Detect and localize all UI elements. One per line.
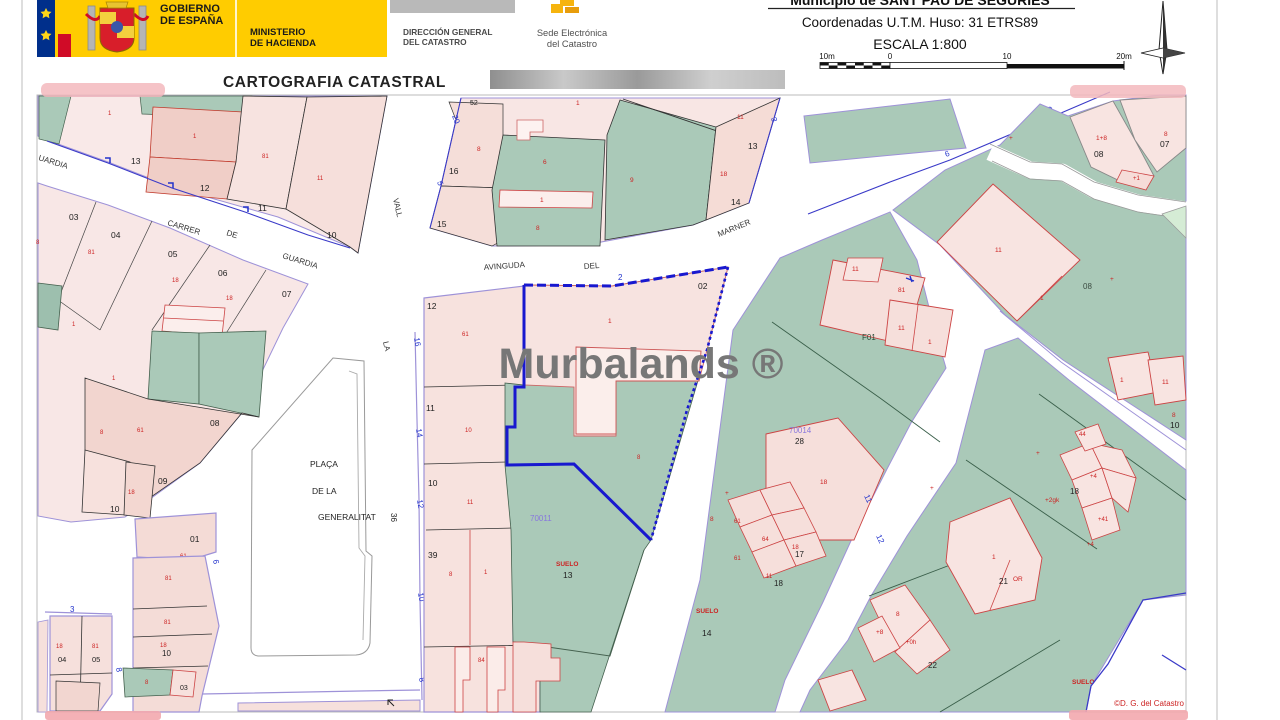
svg-text:61: 61	[734, 556, 741, 562]
svg-text:+1: +1	[1133, 176, 1141, 182]
svg-text:+: +	[725, 490, 729, 497]
svg-text:11: 11	[766, 574, 773, 580]
svg-text:8: 8	[896, 611, 900, 618]
svg-text:03: 03	[180, 685, 188, 692]
svg-text:11: 11	[852, 266, 859, 273]
svg-text:52: 52	[470, 100, 478, 107]
svg-text:1: 1	[1040, 295, 1044, 302]
svg-text:+: +	[930, 485, 934, 492]
svg-text:8: 8	[1172, 412, 1176, 419]
svg-text:11: 11	[995, 247, 1002, 254]
svg-text:11: 11	[426, 403, 435, 413]
svg-text:2: 2	[618, 273, 623, 282]
svg-text:64: 64	[762, 537, 769, 543]
svg-text:03: 03	[69, 212, 79, 222]
svg-text:Coordenadas U.T.M. Huso: 31 ET: Coordenadas U.T.M. Huso: 31 ETRS89	[802, 15, 1038, 30]
svg-text:12: 12	[427, 301, 437, 311]
svg-text:18: 18	[128, 490, 135, 496]
svg-text:OR: OR	[1013, 576, 1023, 583]
svg-text:del Catastro: del Catastro	[547, 39, 597, 49]
svg-text:+: +	[1110, 276, 1114, 283]
svg-text:Sede Electrónica: Sede Electrónica	[537, 28, 608, 38]
svg-text:02: 02	[698, 281, 708, 291]
svg-text:17: 17	[795, 550, 804, 559]
svg-text:+2gk: +2gk	[1045, 497, 1060, 504]
svg-text:+8: +8	[876, 629, 884, 636]
svg-text:36: 36	[389, 513, 398, 522]
svg-text:18: 18	[720, 171, 728, 178]
svg-text:18: 18	[774, 579, 783, 588]
svg-text:Murbalands ®: Murbalands ®	[499, 340, 784, 388]
svg-text:04: 04	[111, 230, 121, 240]
svg-text:10: 10	[327, 230, 337, 240]
svg-text:16: 16	[449, 166, 459, 176]
svg-text:+4: +4	[1087, 542, 1095, 548]
svg-text:11: 11	[467, 500, 474, 506]
svg-text:0: 0	[888, 52, 893, 61]
svg-text:13: 13	[748, 141, 758, 151]
svg-text:18: 18	[820, 479, 828, 486]
svg-text:8: 8	[710, 516, 714, 523]
svg-text:44: 44	[1079, 432, 1086, 438]
svg-text:13: 13	[563, 570, 573, 580]
svg-text:15: 15	[437, 219, 447, 229]
svg-text:10: 10	[162, 649, 171, 658]
svg-text:01: 01	[190, 534, 200, 544]
svg-text:8: 8	[1164, 131, 1168, 138]
svg-text:04: 04	[58, 655, 66, 664]
svg-text:10: 10	[465, 428, 472, 434]
svg-text:+0h: +0h	[906, 640, 916, 646]
svg-text:MINISTERIO: MINISTERIO	[250, 27, 305, 38]
svg-text:8: 8	[477, 146, 481, 153]
svg-text:©D. G. del Catastro: ©D. G. del Catastro	[1114, 699, 1184, 708]
svg-text:05: 05	[168, 249, 178, 259]
svg-text:1: 1	[992, 554, 996, 561]
svg-text:39: 39	[428, 550, 438, 560]
svg-text:1: 1	[928, 339, 932, 346]
svg-text:81: 81	[92, 644, 99, 650]
svg-text:10: 10	[110, 504, 120, 514]
svg-text:DEL CATASTRO: DEL CATASTRO	[403, 37, 467, 47]
svg-text:PLAÇA: PLAÇA	[310, 459, 338, 469]
svg-text:18: 18	[1070, 487, 1079, 496]
svg-text:18: 18	[160, 643, 167, 649]
svg-text:07: 07	[282, 289, 292, 299]
svg-text:11: 11	[1162, 379, 1169, 386]
svg-text:20m: 20m	[1116, 52, 1132, 61]
svg-text:61: 61	[734, 519, 741, 525]
svg-text:8: 8	[536, 225, 540, 232]
svg-text:18: 18	[226, 296, 233, 302]
svg-text:10m: 10m	[819, 52, 835, 61]
svg-text:81: 81	[262, 154, 269, 160]
svg-text:F01: F01	[862, 333, 876, 342]
svg-text:70014: 70014	[789, 426, 812, 435]
svg-text:10: 10	[1003, 52, 1012, 61]
svg-text:22: 22	[928, 661, 937, 670]
svg-text:61: 61	[137, 428, 144, 434]
svg-text:08: 08	[210, 418, 220, 428]
svg-text:+: +	[1036, 450, 1040, 457]
svg-text:12: 12	[200, 183, 210, 193]
svg-text:9: 9	[630, 177, 634, 184]
svg-text:11: 11	[737, 114, 744, 121]
svg-text:61: 61	[462, 332, 469, 338]
svg-text:1: 1	[1120, 377, 1124, 384]
svg-text:14: 14	[702, 628, 712, 638]
svg-text:11: 11	[317, 176, 324, 182]
svg-text:81: 81	[88, 250, 95, 256]
svg-text:6: 6	[543, 159, 547, 166]
svg-text:10: 10	[1170, 420, 1180, 430]
svg-text:81: 81	[898, 287, 906, 294]
svg-text:05: 05	[92, 655, 100, 664]
svg-text:GENERALITAT: GENERALITAT	[318, 512, 376, 522]
svg-text:+4: +4	[1090, 474, 1098, 480]
svg-text:18: 18	[56, 644, 63, 650]
svg-text:11: 11	[898, 325, 905, 332]
svg-text:81: 81	[165, 576, 172, 582]
svg-text:06: 06	[218, 268, 228, 278]
svg-text:1: 1	[608, 318, 612, 325]
svg-text:DIRECCIÓN GENERAL: DIRECCIÓN GENERAL	[403, 26, 492, 37]
svg-text:14: 14	[731, 197, 741, 207]
svg-text:DEL: DEL	[584, 261, 601, 271]
svg-text:DE LA: DE LA	[312, 486, 337, 496]
svg-text:1: 1	[576, 100, 580, 107]
svg-text:81: 81	[164, 620, 171, 626]
svg-text:13: 13	[131, 156, 141, 166]
svg-text:SUELO: SUELO	[696, 608, 718, 615]
svg-text:DE HACIENDA: DE HACIENDA	[250, 38, 316, 49]
svg-text:21: 21	[999, 577, 1008, 586]
svg-text:1: 1	[540, 197, 544, 204]
svg-text:07: 07	[1160, 139, 1170, 149]
svg-text:08: 08	[1094, 149, 1104, 159]
svg-text:Municipio de SANT PAU DE SEGUR: Municipio de SANT PAU DE SEGURIES	[790, 0, 1050, 8]
svg-text:+: +	[1009, 135, 1013, 142]
svg-text:CARTOGRAFIA CATASTRAL: CARTOGRAFIA CATASTRAL	[223, 74, 446, 91]
svg-text:SUELO: SUELO	[556, 561, 578, 568]
svg-text:DE ESPAÑA: DE ESPAÑA	[160, 14, 223, 27]
svg-text:18: 18	[172, 278, 179, 284]
svg-text:08: 08	[1083, 282, 1092, 291]
svg-text:1+8: 1+8	[1096, 135, 1107, 142]
svg-text:28: 28	[795, 437, 804, 446]
svg-text:+41: +41	[1098, 517, 1109, 523]
svg-text:11: 11	[258, 203, 267, 213]
svg-text:GOBIERNO: GOBIERNO	[160, 3, 220, 15]
svg-text:09: 09	[158, 476, 168, 486]
svg-text:84: 84	[478, 658, 485, 664]
svg-text:10: 10	[428, 478, 438, 488]
svg-text:ESCALA 1:800: ESCALA 1:800	[873, 36, 967, 52]
svg-text:70011: 70011	[530, 514, 552, 523]
